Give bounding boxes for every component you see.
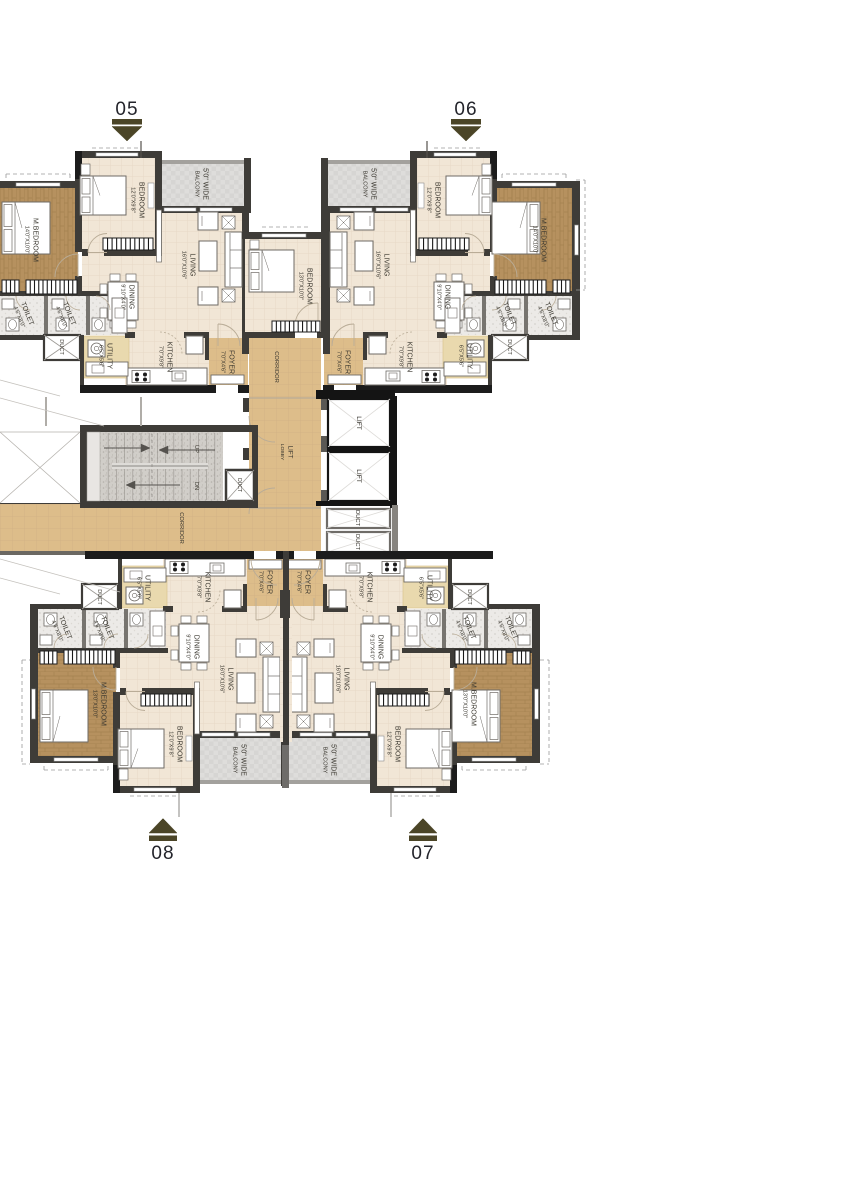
svg-text:DUCT: DUCT xyxy=(466,589,472,605)
svg-text:M.BEDROOM: M.BEDROOM xyxy=(470,682,477,726)
svg-text:FOYER: FOYER xyxy=(304,570,311,594)
svg-text:9'10"X4'0": 9'10"X4'0" xyxy=(119,284,125,309)
svg-text:5'0" WIDE: 5'0" WIDE xyxy=(240,744,247,776)
svg-text:7'0"X4'6": 7'0"X4'6" xyxy=(219,351,225,373)
svg-text:M.BEDROOM: M.BEDROOM xyxy=(100,682,107,726)
svg-text:KITCHEN: KITCHEN xyxy=(204,572,211,603)
svg-text:BEDROOM: BEDROOM xyxy=(434,182,441,218)
svg-text:DUCT: DUCT xyxy=(354,510,360,527)
svg-text:BALCONY: BALCONY xyxy=(321,747,327,774)
svg-text:7'0"X4'6": 7'0"X4'6" xyxy=(335,351,341,373)
svg-text:7'0"X4'6": 7'0"X4'6" xyxy=(257,571,263,593)
svg-text:BALCONY: BALCONY xyxy=(231,747,237,774)
svg-text:14'0"X10'0": 14'0"X10'0" xyxy=(531,226,537,255)
svg-text:FOYER: FOYER xyxy=(344,350,351,374)
svg-text:BEDROOM: BEDROOM xyxy=(176,726,183,762)
svg-text:12'0"X9'8": 12'0"X9'8" xyxy=(385,731,391,756)
svg-text:BEDROOM: BEDROOM xyxy=(394,726,401,762)
svg-text:UTILITY: UTILITY xyxy=(144,575,151,601)
svg-text:12'0"X9'8": 12'0"X9'8" xyxy=(167,731,173,756)
svg-text:DINING: DINING xyxy=(193,635,200,660)
svg-text:6'5"X5'6": 6'5"X5'6" xyxy=(417,577,423,599)
svg-text:12'0"X9'8": 12'0"X9'8" xyxy=(129,187,135,212)
svg-text:LIVING: LIVING xyxy=(343,668,350,691)
svg-text:BEDROOM: BEDROOM xyxy=(306,268,313,304)
svg-text:LOBBY: LOBBY xyxy=(279,444,285,461)
svg-text:M.BEDROOM: M.BEDROOM xyxy=(540,218,547,262)
svg-text:LIFT: LIFT xyxy=(355,416,362,430)
svg-text:7'0"X9'8": 7'0"X9'8" xyxy=(357,576,363,598)
svg-text:14'0"X10'0": 14'0"X10'0" xyxy=(23,226,29,255)
svg-text:DUCT: DUCT xyxy=(58,339,64,355)
svg-text:BEDROOM: BEDROOM xyxy=(138,182,145,218)
svg-text:16'0"X10'6": 16'0"X10'6" xyxy=(180,251,186,280)
svg-text:FOYER: FOYER xyxy=(228,350,235,374)
svg-text:7'0"X4'6": 7'0"X4'6" xyxy=(295,571,301,593)
svg-text:CORRIDOR: CORRIDOR xyxy=(178,512,184,544)
svg-text:7'0"X9'8": 7'0"X9'8" xyxy=(157,346,163,368)
svg-text:16'0"X10'6": 16'0"X10'6" xyxy=(334,665,340,694)
svg-text:M.BEDROOM: M.BEDROOM xyxy=(32,218,39,262)
svg-text:BALCONY: BALCONY xyxy=(193,171,199,198)
svg-text:06: 06 xyxy=(454,99,477,120)
svg-text:DUCT: DUCT xyxy=(354,534,360,551)
svg-text:DINING: DINING xyxy=(444,285,451,310)
svg-text:6'5"X5'6": 6'5"X5'6" xyxy=(97,345,103,367)
svg-text:BALCONY: BALCONY xyxy=(361,171,367,198)
svg-text:16'0"X10'6": 16'0"X10'6" xyxy=(218,665,224,694)
svg-text:05: 05 xyxy=(115,99,138,120)
svg-text:UTILITY: UTILITY xyxy=(106,343,113,369)
svg-text:KITCHEN: KITCHEN xyxy=(366,572,373,603)
svg-text:13'0"X10'0": 13'0"X10'0" xyxy=(461,690,467,719)
svg-text:5'0" WIDE: 5'0" WIDE xyxy=(202,168,209,200)
svg-text:LIFT: LIFT xyxy=(287,446,294,459)
svg-text:12'0"X9'8": 12'0"X9'8" xyxy=(425,187,431,212)
svg-text:6'5"X5'6": 6'5"X5'6" xyxy=(135,577,141,599)
svg-text:07: 07 xyxy=(411,843,434,864)
svg-text:5'0" WIDE: 5'0" WIDE xyxy=(370,168,377,200)
svg-text:CORRIDOR: CORRIDOR xyxy=(273,351,279,383)
svg-text:KITCHEN: KITCHEN xyxy=(406,342,413,373)
svg-text:6'5"X5'6": 6'5"X5'6" xyxy=(457,345,463,367)
svg-text:08: 08 xyxy=(151,843,174,864)
svg-text:UP: UP xyxy=(193,445,199,453)
svg-text:KITCHEN: KITCHEN xyxy=(166,342,173,373)
svg-text:7'0"X9'8": 7'0"X9'8" xyxy=(195,576,201,598)
svg-text:LIVING: LIVING xyxy=(227,668,234,691)
svg-text:LIVING: LIVING xyxy=(383,254,390,277)
svg-text:LIFT: LIFT xyxy=(355,469,362,483)
svg-text:UTILITY: UTILITY xyxy=(426,575,433,601)
svg-text:DN: DN xyxy=(193,482,199,490)
svg-text:DUCT: DUCT xyxy=(96,589,102,605)
svg-text:13'0"X10'0": 13'0"X10'0" xyxy=(297,272,303,301)
svg-text:16'0"X10'6": 16'0"X10'6" xyxy=(374,251,380,280)
svg-text:13'0"X10'0": 13'0"X10'0" xyxy=(91,690,97,719)
svg-text:FOYER: FOYER xyxy=(266,570,273,594)
svg-text:9'10"X4'0": 9'10"X4'0" xyxy=(435,284,441,309)
svg-text:DUCT: DUCT xyxy=(506,339,512,355)
svg-text:7'0"X9'8": 7'0"X9'8" xyxy=(397,346,403,368)
svg-text:DUCT: DUCT xyxy=(236,478,242,492)
svg-text:9'10"X4'0": 9'10"X4'0" xyxy=(184,634,190,659)
svg-text:9'10"X4'0": 9'10"X4'0" xyxy=(368,634,374,659)
svg-text:DINING: DINING xyxy=(377,635,384,660)
svg-text:UTILITY: UTILITY xyxy=(466,343,473,369)
svg-text:5'0" WIDE: 5'0" WIDE xyxy=(330,744,337,776)
svg-text:LIVING: LIVING xyxy=(189,254,196,277)
svg-text:DINING: DINING xyxy=(128,285,135,310)
